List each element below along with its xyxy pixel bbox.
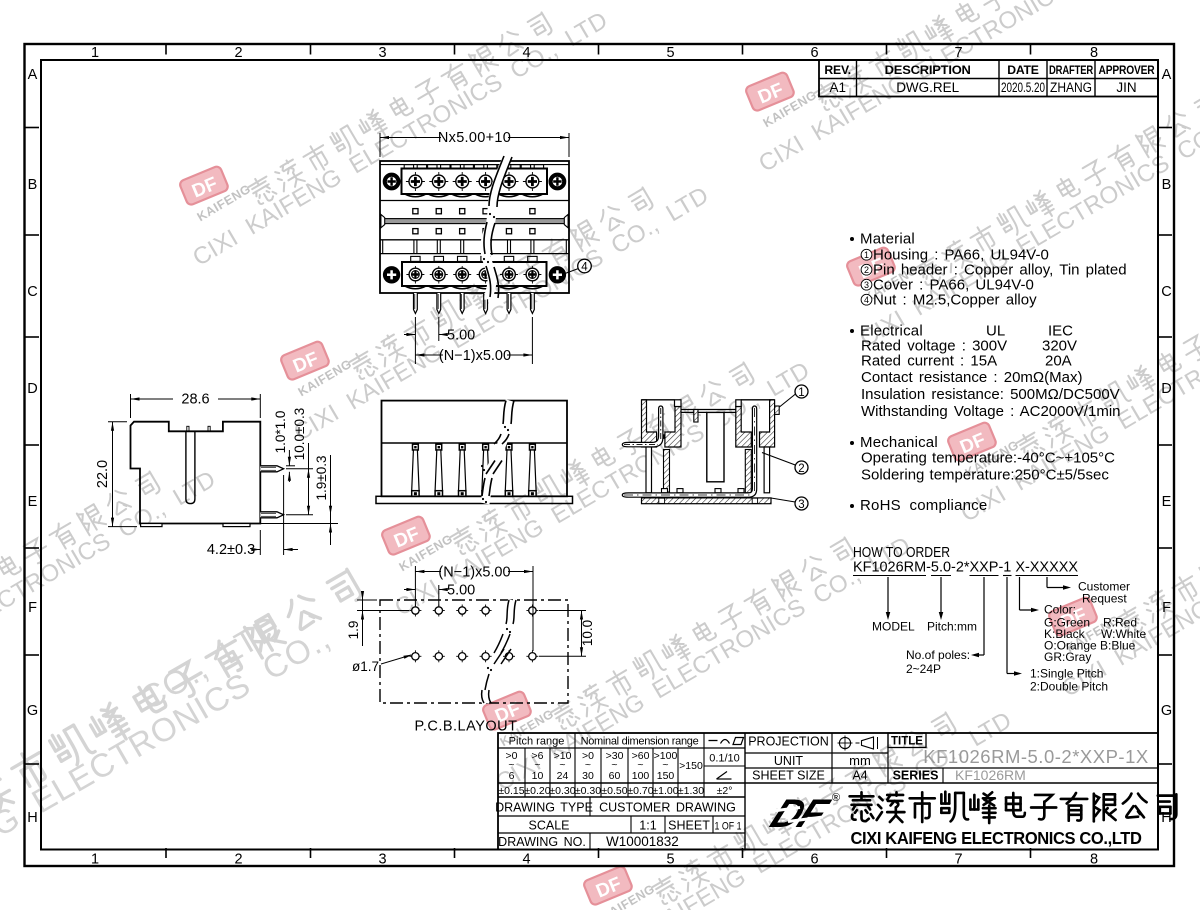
svg-text:6: 6: [810, 45, 818, 61]
svg-text:1.9: 1.9: [346, 621, 361, 640]
svg-text:C: C: [27, 284, 37, 300]
svg-text:6: 6: [509, 770, 515, 782]
svg-text:Material: Material: [860, 231, 915, 248]
svg-text:4: 4: [581, 262, 588, 274]
svg-text:2020.5.20: 2020.5.20: [1001, 80, 1045, 95]
svg-text:±1.00: ±1.00: [652, 785, 678, 797]
svg-text:W10001832: W10001832: [606, 834, 679, 849]
svg-text:DWG.REL: DWG.REL: [896, 80, 959, 95]
svg-text:DRAFTER: DRAFTER: [1049, 63, 1093, 77]
svg-text:Soldering temperature:250°C±5/: Soldering temperature:250°C±5/5sec: [861, 467, 1109, 484]
svg-text:CIXI KAIFENG ELECTRONICS CO.,L: CIXI KAIFENG ELECTRONICS CO.,LTD: [851, 828, 1142, 848]
svg-text:Request: Request: [1082, 592, 1127, 606]
svg-text:4: 4: [522, 45, 530, 61]
svg-text:No.of poles:: No.of poles:: [906, 648, 970, 662]
svg-text:24: 24: [557, 770, 569, 782]
svg-text:KF1026RM-5.0-2*XXP-1X: KF1026RM-5.0-2*XXP-1X: [923, 746, 1148, 767]
svg-text:DESCRIPTION: DESCRIPTION: [885, 63, 971, 77]
svg-text:4: 4: [522, 852, 530, 868]
svg-text:10.0: 10.0: [580, 620, 595, 646]
svg-text:2: 2: [864, 265, 869, 275]
svg-text:B: B: [1162, 177, 1172, 193]
svg-text:3: 3: [378, 45, 386, 61]
svg-text:G: G: [1161, 703, 1172, 719]
svg-text:D: D: [27, 381, 37, 397]
svg-text:UNIT: UNIT: [774, 754, 804, 768]
svg-text:1: 1: [91, 45, 99, 61]
svg-text:REV.: REV.: [824, 63, 851, 77]
svg-text:60: 60: [609, 770, 621, 782]
svg-text:8: 8: [1090, 852, 1098, 868]
svg-text:D: D: [1161, 381, 1171, 397]
svg-text:2~24P: 2~24P: [906, 662, 941, 676]
svg-text:0.1/10: 0.1/10: [709, 753, 740, 765]
svg-text:Pitch:mm: Pitch:mm: [927, 620, 977, 634]
svg-text:DRAWING TYPE: DRAWING TYPE: [495, 801, 593, 815]
svg-text:1.0*1.0: 1.0*1.0: [273, 411, 288, 454]
svg-text:2: 2: [798, 463, 804, 475]
svg-text:30: 30: [582, 770, 594, 782]
svg-text:JIN: JIN: [1116, 80, 1136, 95]
svg-text:1.9±0.3: 1.9±0.3: [314, 456, 329, 501]
svg-text:DRAWING NO.: DRAWING NO.: [498, 835, 586, 849]
svg-text:(N−1)x5.00: (N−1)x5.00: [438, 564, 510, 580]
svg-text:(N−1)x5.00: (N−1)x5.00: [439, 348, 511, 364]
svg-text:28.6: 28.6: [181, 392, 209, 408]
svg-text:ø1.7: ø1.7: [352, 659, 379, 674]
svg-text:3: 3: [864, 280, 869, 290]
svg-text:B:Blue: B:Blue: [1100, 639, 1136, 653]
svg-text:Insulation resistance: 500MΩ/D: Insulation resistance: 500MΩ/DC500V: [861, 386, 1120, 403]
svg-text:A: A: [28, 67, 38, 83]
svg-text:KF1026RM: KF1026RM: [955, 767, 1026, 783]
svg-text:100: 100: [632, 770, 650, 782]
svg-text:5: 5: [666, 852, 674, 868]
svg-text:4: 4: [864, 295, 869, 305]
svg-text:P.C.B.LAYOUT: P.C.B.LAYOUT: [415, 719, 518, 735]
svg-text:Color:: Color:: [1044, 603, 1076, 617]
svg-text:RoHS compliance: RoHS compliance: [860, 497, 987, 514]
svg-text:SERIES: SERIES: [893, 769, 939, 783]
svg-text:8: 8: [1090, 45, 1098, 61]
svg-text:G: G: [27, 703, 38, 719]
svg-text:Rated current : 15A: Rated current : 15A: [861, 353, 997, 370]
svg-text:ZHANG: ZHANG: [1050, 80, 1092, 95]
svg-text:F: F: [1162, 600, 1171, 616]
svg-text:1:1: 1:1: [639, 819, 656, 833]
svg-text:mm: mm: [849, 753, 871, 768]
svg-text:5.00: 5.00: [447, 583, 475, 599]
svg-text:B: B: [28, 177, 38, 193]
svg-text:7: 7: [954, 45, 962, 61]
svg-text:6: 6: [810, 852, 818, 868]
svg-text:A: A: [1162, 67, 1172, 83]
svg-text:2: 2: [234, 45, 242, 61]
svg-text:®: ®: [832, 792, 840, 804]
svg-text:TITLE: TITLE: [891, 735, 923, 747]
svg-text:SHEET: SHEET: [668, 819, 710, 833]
svg-text:Contact resistance : 20mΩ(Max): Contact resistance : 20mΩ(Max): [861, 369, 1082, 386]
svg-text:±0.20: ±0.20: [524, 785, 550, 797]
svg-text:F: F: [28, 600, 37, 616]
svg-text:20A: 20A: [1045, 353, 1072, 370]
svg-text:A4: A4: [852, 769, 867, 783]
svg-text:Withstanding Voltage : AC2000V: Withstanding Voltage : AC2000V/1min: [861, 403, 1121, 420]
svg-text:E: E: [28, 494, 38, 510]
svg-text:KF1026RM-5.0-2*XXP-1 X-XXXXX: KF1026RM-5.0-2*XXP-1 X-XXXXX: [853, 560, 1078, 576]
svg-text:>150: >150: [679, 760, 703, 772]
svg-text:3: 3: [378, 852, 386, 868]
svg-text:±0.50: ±0.50: [601, 785, 627, 797]
svg-text:±0.15: ±0.15: [498, 785, 524, 797]
svg-text:DATE: DATE: [1007, 63, 1039, 77]
svg-text:Pitch range: Pitch range: [509, 736, 565, 748]
svg-text:150: 150: [657, 770, 675, 782]
svg-text:CUSTOMER DRAWING: CUSTOMER DRAWING: [599, 801, 736, 815]
svg-text:MODEL: MODEL: [872, 620, 915, 634]
svg-text:1: 1: [864, 250, 869, 260]
svg-text:A1: A1: [829, 80, 846, 95]
svg-text:7: 7: [954, 852, 962, 868]
svg-text:1: 1: [91, 852, 99, 868]
svg-text:SHEET SIZE: SHEET SIZE: [752, 769, 825, 783]
svg-text:1 OF 1: 1 OF 1: [715, 821, 742, 833]
svg-text:E: E: [1162, 494, 1172, 510]
svg-text:APPROVER: APPROVER: [1099, 63, 1155, 77]
svg-text:±0.30: ±0.30: [575, 785, 601, 797]
svg-text:±1.30: ±1.30: [678, 785, 704, 797]
svg-text:SCALE: SCALE: [529, 819, 570, 833]
svg-text:Mechanical: Mechanical: [860, 434, 938, 451]
svg-text:Nut : M2.5,Copper alloy: Nut : M2.5,Copper alloy: [873, 292, 1037, 309]
svg-text:1: 1: [798, 387, 804, 399]
svg-text:2: 2: [234, 852, 242, 868]
svg-text:±0.30: ±0.30: [549, 785, 575, 797]
svg-text:GR:Gray: GR:Gray: [1044, 650, 1091, 664]
svg-text:C: C: [1161, 284, 1171, 300]
svg-text:22.0: 22.0: [95, 460, 111, 488]
svg-text:10: 10: [532, 770, 544, 782]
svg-text:Operating temperature:-40°C~+1: Operating temperature:-40°C~+105°C: [861, 450, 1115, 467]
svg-text:PROJECTION: PROJECTION: [748, 735, 829, 749]
svg-text:1:Single Pitch: 1:Single Pitch: [1030, 667, 1103, 681]
svg-text:3: 3: [798, 499, 804, 511]
svg-text:±0.70: ±0.70: [627, 785, 653, 797]
svg-text:2:Double Pitch: 2:Double Pitch: [1030, 680, 1108, 694]
svg-text:H: H: [27, 810, 37, 826]
svg-text:4.2±0.3: 4.2±0.3: [207, 542, 255, 558]
svg-text:5: 5: [666, 45, 674, 61]
svg-text:10.0±0.3: 10.0±0.3: [292, 408, 307, 460]
svg-text:5.00: 5.00: [447, 328, 475, 344]
svg-text:Nominal dimension range: Nominal dimension range: [581, 736, 699, 748]
svg-text:±2°: ±2°: [717, 785, 733, 797]
svg-text:Nx5.00+10: Nx5.00+10: [438, 130, 511, 146]
